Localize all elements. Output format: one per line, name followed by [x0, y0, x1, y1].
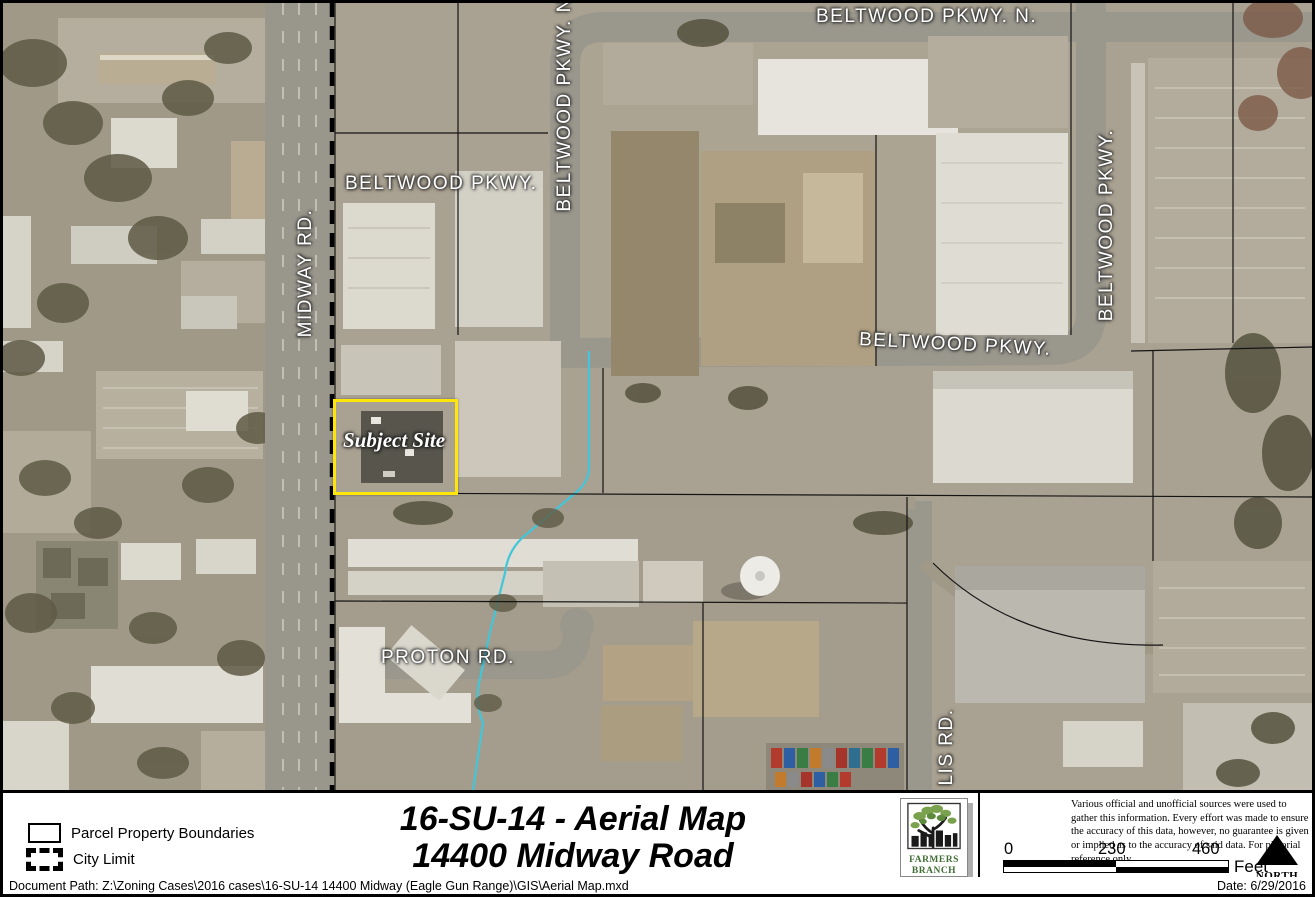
bottom-info-bar: Document Path: Z:\Zoning Cases\2016 case…: [3, 877, 1312, 894]
street-label-proton-rd: PROTON RD.: [381, 647, 515, 669]
tree-skyline-icon: [907, 802, 961, 850]
north-arrow: NORTH: [1251, 835, 1303, 882]
scale-bar: 0 230 460 Feet: [1003, 840, 1293, 878]
scale-tick-230: 230: [1098, 840, 1126, 859]
legend-item-city-limit: City Limit: [26, 848, 135, 871]
map-title-line1: 16-SU-14 - Aerial Map: [333, 801, 813, 838]
street-label-midway-rd: MIDWAY RD.: [295, 209, 317, 338]
legend-item-parcel-boundaries: Parcel Property Boundaries: [28, 823, 254, 843]
map-date: Date: 6/29/2016: [1217, 879, 1306, 893]
street-label-beltwood-pkwy-n-west: BELTWOOD PKWY. N.: [554, 3, 576, 212]
street-label-beltwood-pkwy-upper: BELTWOOD PKWY.: [345, 173, 537, 195]
street-label-beltwood-pkwy-east: BELTWOOD PKWY.: [1096, 129, 1118, 321]
subject-site-boundary: Subject Site: [333, 399, 458, 495]
map-footer: Parcel Property Boundaries City Limit 16…: [3, 790, 1312, 880]
logo-text-line1: FARMERS: [901, 855, 967, 866]
map-document-page: BELTWOOD PKWY. N. BELTWOOD PKWY. N. BELT…: [0, 0, 1315, 897]
city-limit-swatch-icon: [26, 848, 63, 871]
north-arrow-icon: [1254, 835, 1300, 865]
legend-label: Parcel Property Boundaries: [71, 825, 254, 842]
legend-label: City Limit: [73, 851, 135, 868]
parcel-boundary-swatch-icon: [28, 823, 61, 843]
scale-tick-0: 0: [1004, 840, 1013, 859]
street-label-beltwood-pkwy-n-top: BELTWOOD PKWY. N.: [816, 6, 1037, 28]
map-title: 16-SU-14 - Aerial Map 14400 Midway Road: [333, 801, 813, 875]
scale-tick-460: 460: [1192, 840, 1220, 859]
subject-site-label: Subject Site: [343, 428, 445, 453]
scale-band-icon: [1003, 860, 1229, 873]
document-path: Document Path: Z:\Zoning Cases\2016 case…: [9, 879, 629, 893]
logo-text-line2: BRANCH: [901, 866, 967, 877]
aerial-map-area: BELTWOOD PKWY. N. BELTWOOD PKWY. N. BELT…: [3, 3, 1312, 790]
street-label-lis-rd: LIS RD.: [936, 708, 958, 785]
farmers-branch-logo: FARMERS BRANCH: [900, 798, 968, 877]
aerial-imagery: [3, 3, 1312, 790]
footer-divider: [978, 793, 980, 878]
map-title-line2: 14400 Midway Road: [333, 838, 813, 875]
